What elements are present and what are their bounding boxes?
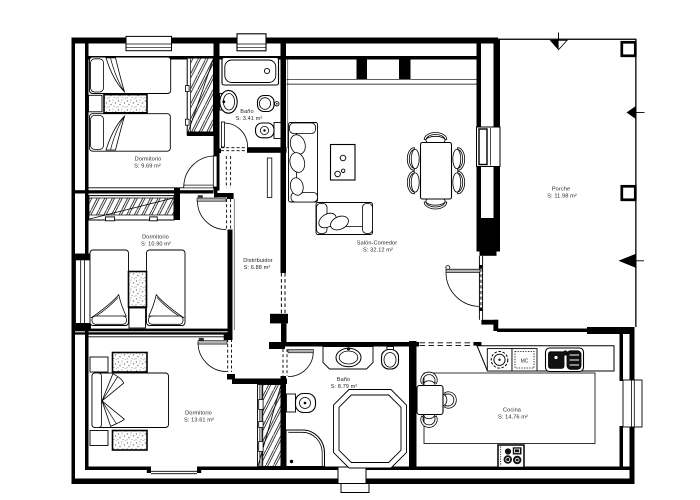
svg-text:Porche: Porche	[552, 187, 570, 193]
svg-text:S: 14.76 m²: S: 14.76 m²	[498, 415, 528, 421]
svg-text:Dormitorio: Dormitorio	[135, 157, 162, 163]
svg-text:MC: MC	[521, 359, 529, 365]
svg-text:Cocina: Cocina	[503, 408, 522, 414]
svg-text:S: 32.12 m²: S: 32.12 m²	[363, 248, 393, 254]
svg-text:Dormitorio: Dormitorio	[142, 235, 169, 241]
svg-text:Salón-Comedor: Salón-Comedor	[357, 241, 398, 247]
svg-text:Dormitorio: Dormitorio	[185, 411, 212, 417]
svg-text:Baño: Baño	[337, 377, 350, 383]
svg-text:S: 3.41 m²: S: 3.41 m²	[236, 116, 263, 122]
svg-text:Distribuidor: Distribuidor	[243, 258, 273, 264]
svg-text:Baño: Baño	[240, 109, 253, 115]
svg-text:S: 6.88 m²: S: 6.88 m²	[244, 265, 271, 271]
svg-text:S: 11.98 m²: S: 11.98 m²	[547, 194, 577, 200]
svg-text:S: 9.69 m²: S: 9.69 m²	[134, 164, 161, 170]
svg-text:S: 13.61 m²: S: 13.61 m²	[184, 418, 214, 424]
svg-text:S: 10.90 m²: S: 10.90 m²	[141, 242, 171, 248]
